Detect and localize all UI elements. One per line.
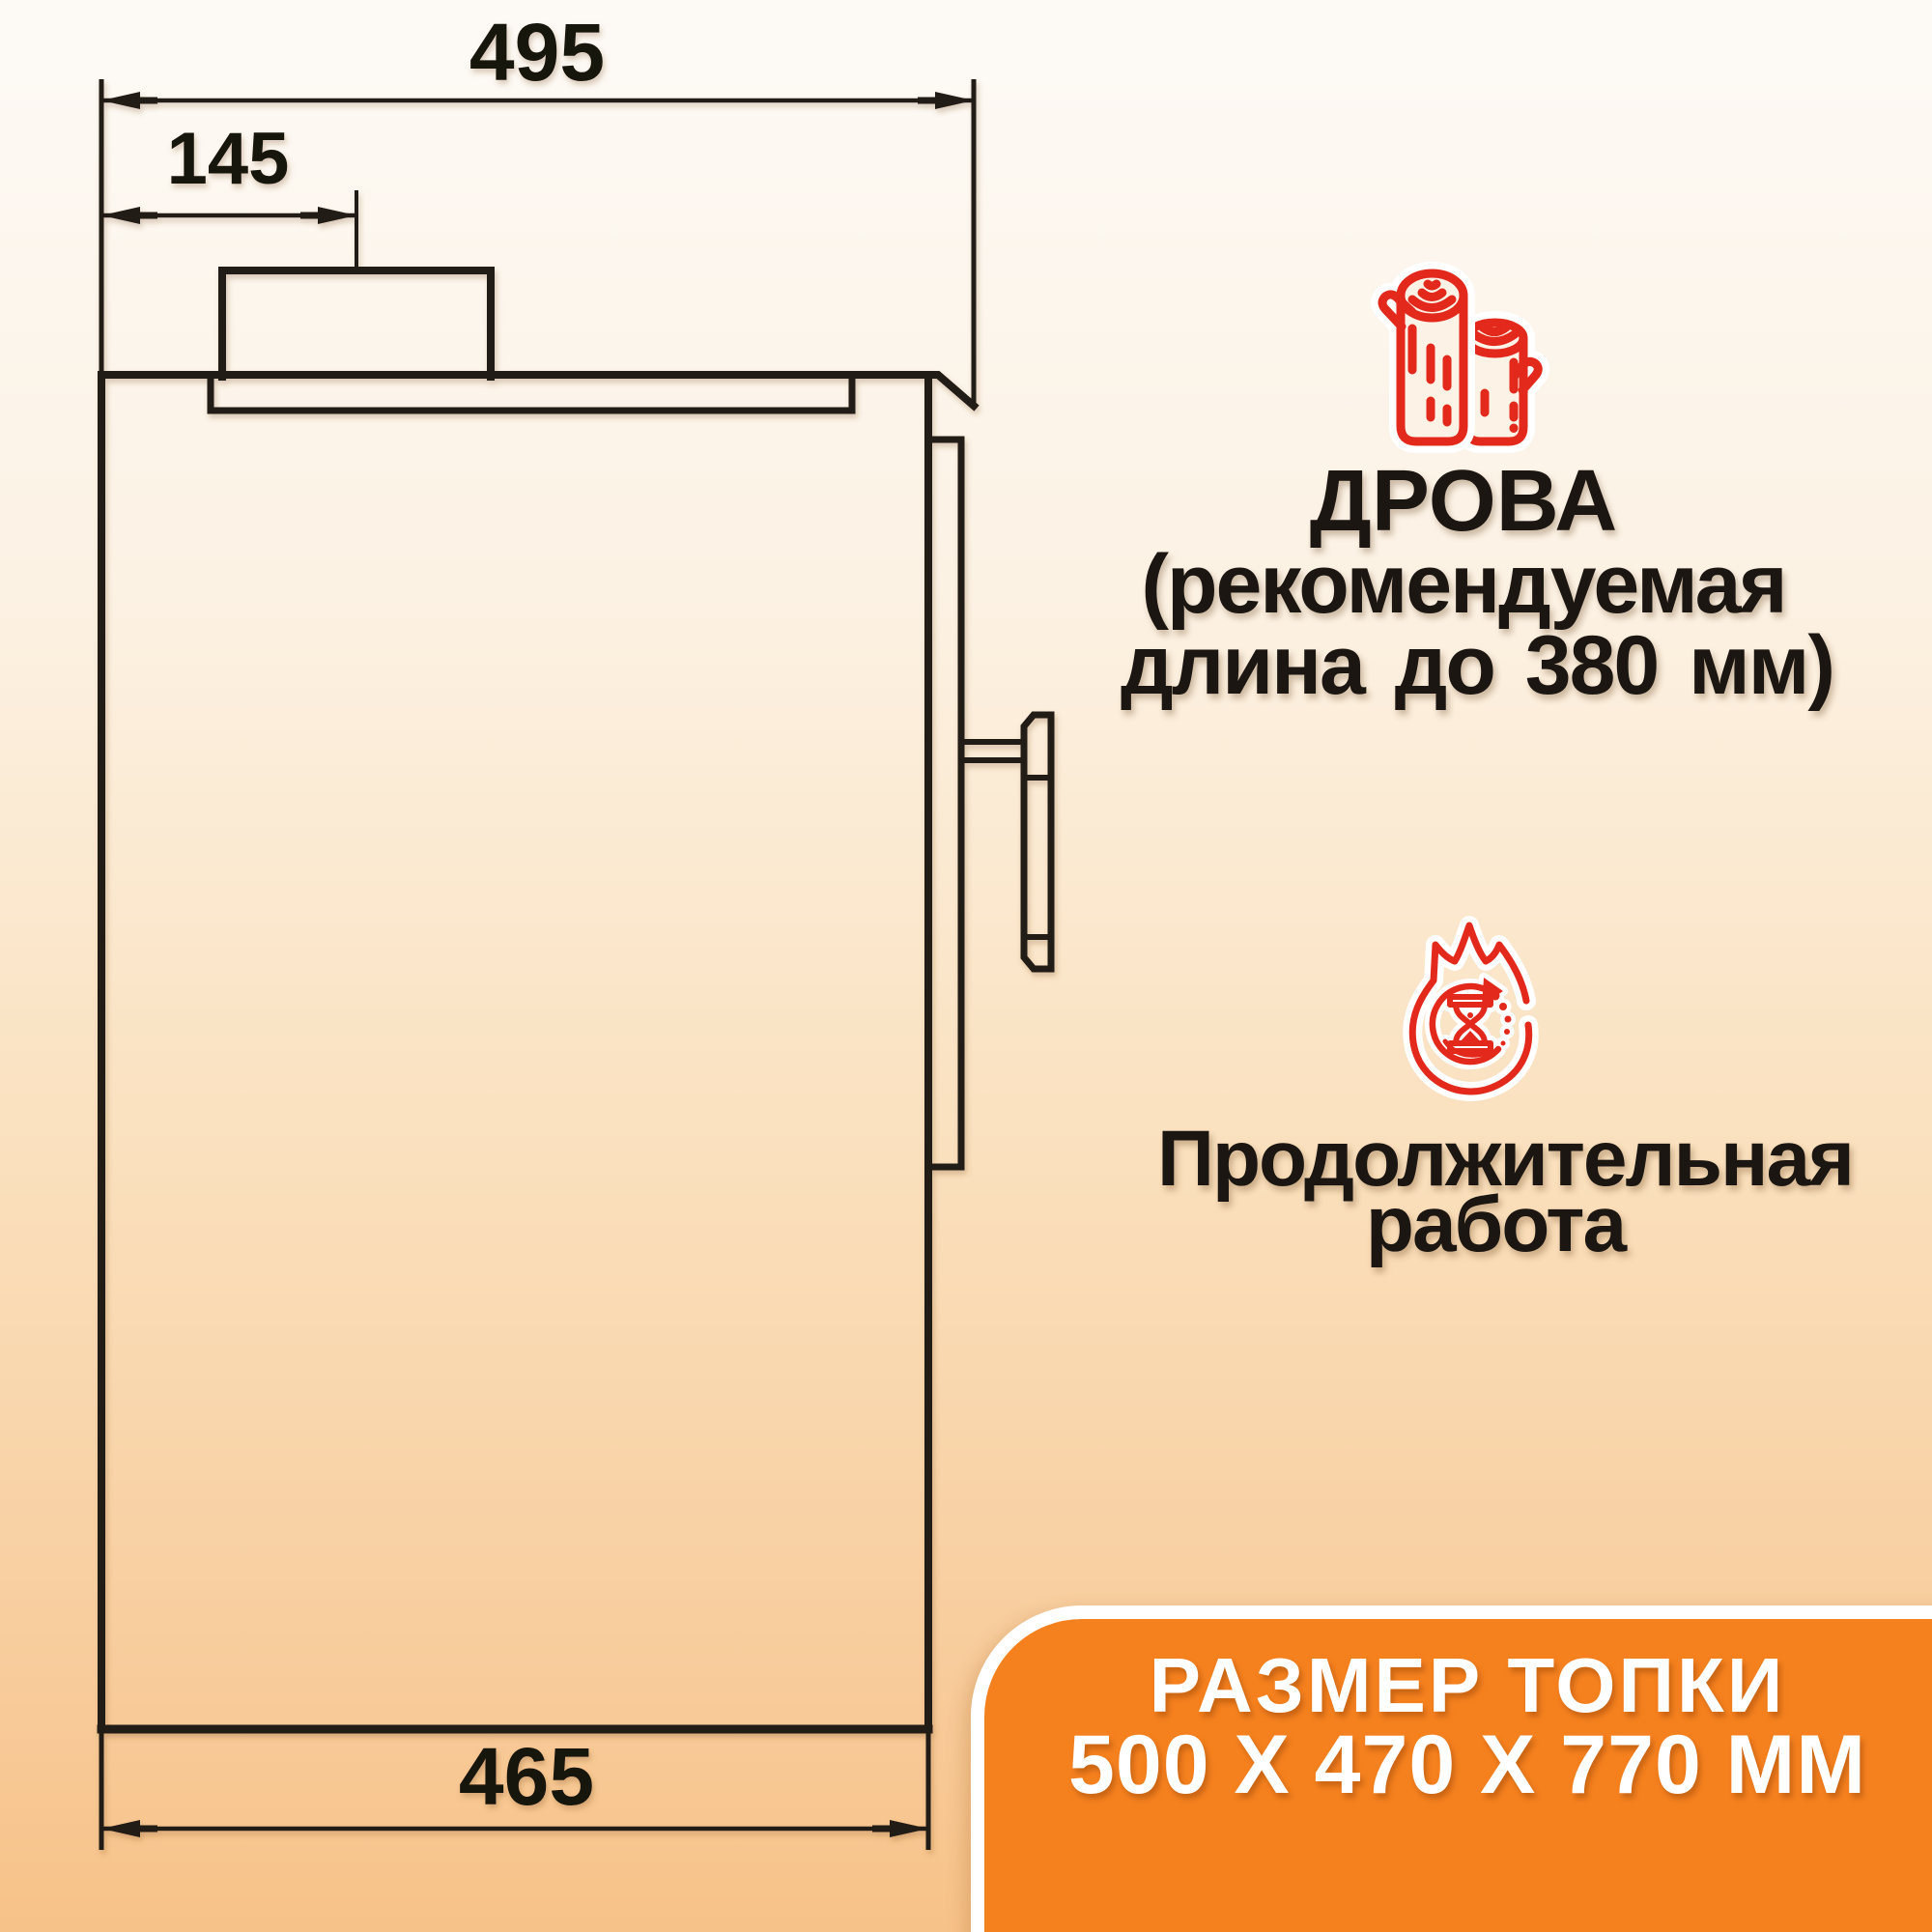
stove-body [101, 270, 974, 1729]
firewood-feature-subtitle-line1: (рекомендуемая [1121, 543, 1806, 626]
arrow-icon [918, 92, 974, 109]
extension-lines [101, 79, 974, 1850]
dimension-label-chimney-offset: 145 [167, 118, 290, 200]
arrow-icon [872, 1820, 928, 1837]
badge-dimensions: 500 Х 470 Х 770 ММ [984, 1723, 1932, 1806]
firebox-size-badge: РАЗМЕР ТОПКИ 500 Х 470 Х 770 ММ [971, 1605, 1932, 1932]
arrow-icon [101, 207, 157, 224]
dimension-arrows [101, 92, 974, 1837]
door-handle [961, 715, 1051, 969]
dimension-lines [101, 100, 974, 1829]
long-burn-feature-line2: работа [1157, 1185, 1833, 1264]
logs-icon [1374, 259, 1557, 452]
handle-grip [1024, 715, 1051, 969]
top-lid-recess [211, 377, 852, 411]
arrow-icon [101, 92, 157, 109]
firebox-door [928, 440, 961, 1167]
dimension-labels: 495 145 465 [167, 7, 605, 1822]
stove-top-edge-with-chamfer [101, 375, 974, 406]
arrow-icon [101, 1820, 157, 1837]
dimension-label-top-width: 495 [469, 7, 605, 98]
flame-hourglass-icon [1399, 916, 1544, 1109]
chimney-outlet [222, 270, 491, 377]
firewood-feature-subtitle-line2: длина до 380 мм) [1121, 624, 1806, 707]
arrow-icon [300, 207, 356, 224]
stove-infographic-page: 495 145 465 [0, 0, 1932, 1932]
badge-title: РАЗМЕР ТОПКИ [984, 1647, 1932, 1724]
dimension-label-bottom-width: 465 [459, 1731, 594, 1822]
firewood-feature-title: ДРОВА [1125, 458, 1802, 545]
